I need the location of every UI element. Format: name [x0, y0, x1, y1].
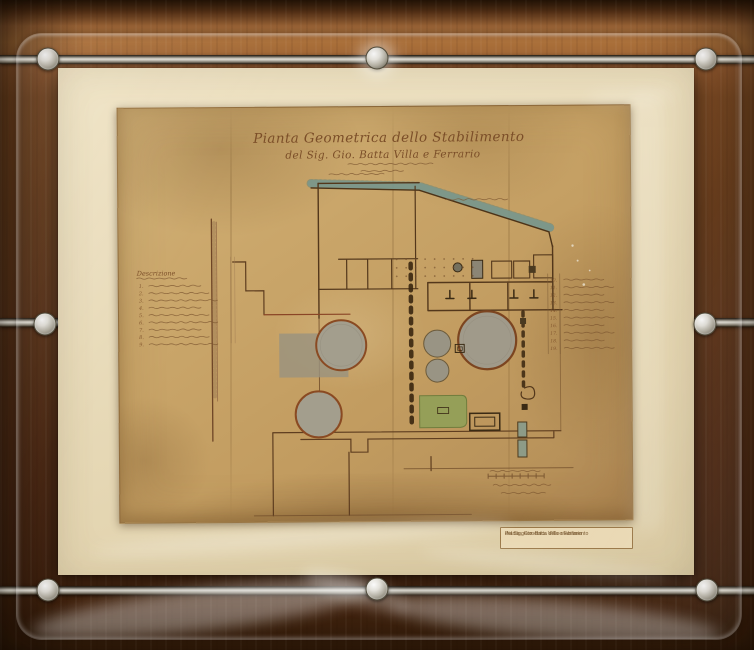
glass-reflection: [587, 87, 678, 106]
mounting-disc-bottom-center: [366, 578, 389, 601]
mounting-disc-top-center: [366, 47, 389, 70]
glass-reflection: [421, 543, 671, 584]
mounting-disc-mid-left: [34, 313, 57, 336]
glass-reflection: [629, 91, 663, 531]
mounting-disc-bottom-left: [37, 579, 60, 602]
mounting-disc-mid-right: [694, 313, 717, 336]
mounting-disc-top-left: [37, 48, 60, 71]
mounting-disc-bottom-right: [696, 579, 719, 602]
mounting-disc-top-right: [695, 48, 718, 71]
glass-reflection: [390, 587, 722, 640]
framed-plan-photo: Pianta Geometrica dello Stabilimento del…: [0, 0, 754, 650]
glass-panel: [16, 33, 742, 640]
